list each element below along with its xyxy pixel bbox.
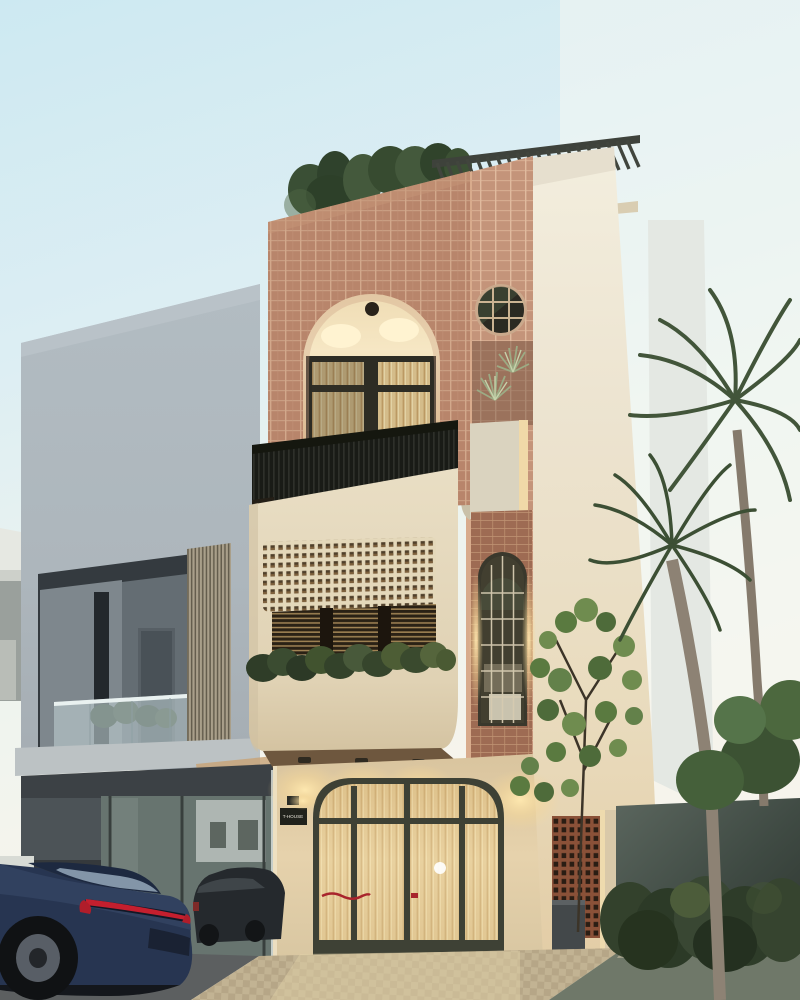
svg-text:T-HOUSE: T-HOUSE (283, 814, 303, 819)
